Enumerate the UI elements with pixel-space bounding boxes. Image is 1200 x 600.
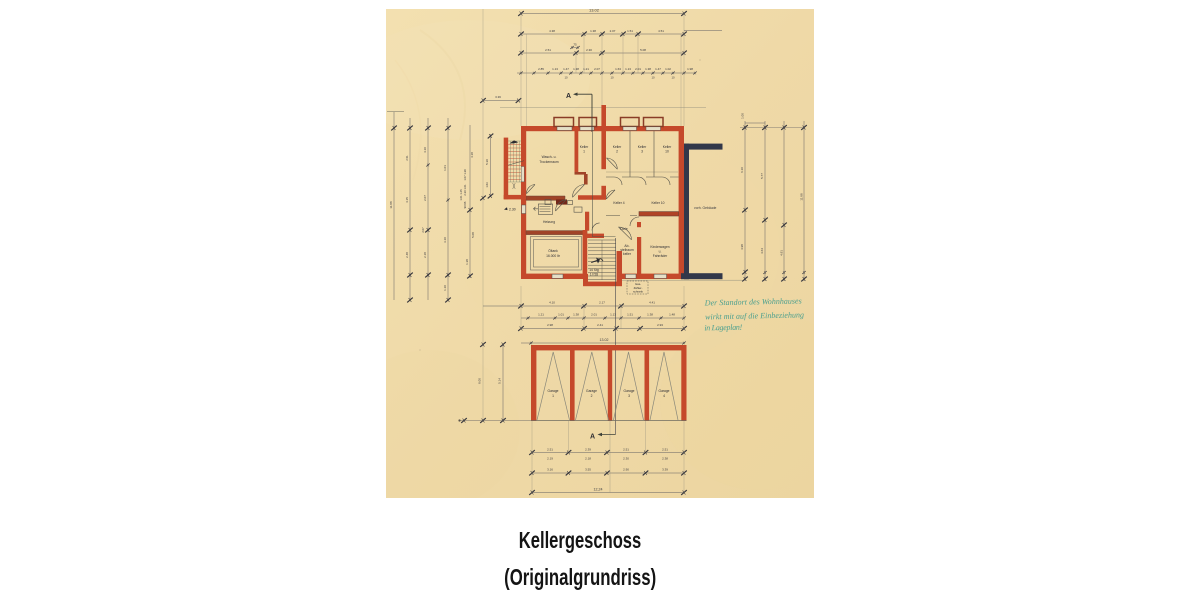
svg-text:2.51: 2.51 xyxy=(662,448,668,452)
svg-text:1.01: 1.01 xyxy=(443,165,447,171)
svg-text:1.00: 1.00 xyxy=(741,113,745,119)
svg-text:5.08: 5.08 xyxy=(471,232,475,238)
svg-text:10: 10 xyxy=(651,76,655,80)
svg-text:3.55: 3.55 xyxy=(585,468,591,472)
svg-text:Garage: Garage xyxy=(586,389,597,393)
svg-text:1.38: 1.38 xyxy=(465,259,469,265)
svg-text:5.14: 5.14 xyxy=(498,378,502,384)
svg-text:2.41: 2.41 xyxy=(597,323,603,327)
svg-text:6.10: 6.10 xyxy=(740,167,744,173)
svg-text:3.16: 3.16 xyxy=(547,468,553,472)
svg-text:4.41: 4.41 xyxy=(649,301,655,305)
svg-text:Keller: Keller xyxy=(638,145,647,149)
svg-text:2.01: 2.01 xyxy=(635,67,641,71)
svg-text:keller: keller xyxy=(623,252,632,256)
svg-text:Garage: Garage xyxy=(659,389,670,393)
svg-text:2.07: 2.07 xyxy=(610,29,616,33)
svg-text:4.10: 4.10 xyxy=(549,301,555,305)
svg-text:2.07: 2.07 xyxy=(594,67,600,71)
svg-text:4.91: 4.91 xyxy=(780,250,784,256)
svg-text:A: A xyxy=(590,434,595,441)
svg-text:4.15: 4.15 xyxy=(405,197,409,203)
svg-text:Keller: Keller xyxy=(580,145,589,149)
svg-text:Garage: Garage xyxy=(624,389,635,393)
svg-text:4.98: 4.98 xyxy=(740,244,744,250)
svg-text:1.63: 1.63 xyxy=(485,182,489,188)
svg-text:1.48: 1.48 xyxy=(669,313,675,317)
svg-text:90 65: 90 65 xyxy=(463,201,467,208)
svg-text:5.30: 5.30 xyxy=(485,159,489,165)
svg-text:2.93: 2.93 xyxy=(657,323,663,327)
svg-text:12,24: 12,24 xyxy=(594,488,603,492)
svg-text:14 Stg: 14 Stg xyxy=(589,268,599,272)
svg-text:2.01: 2.01 xyxy=(591,313,597,317)
svg-text:1.98: 1.98 xyxy=(687,67,693,71)
svg-text:1.10: 1.10 xyxy=(443,285,447,291)
svg-text:2.48: 2.48 xyxy=(405,252,409,258)
svg-text:11.88: 11.88 xyxy=(800,193,804,201)
svg-text:13.02: 13.02 xyxy=(600,338,609,342)
svg-text:1.01 1.25: 1.01 1.25 xyxy=(459,189,463,201)
svg-text:2: 2 xyxy=(616,150,618,154)
svg-text:Öltank: Öltank xyxy=(548,249,558,253)
svg-text:2.30: 2.30 xyxy=(623,457,629,461)
svg-text:2.17: 2.17 xyxy=(599,301,605,305)
svg-text:5.77: 5.77 xyxy=(760,173,764,179)
svg-text:A: A xyxy=(566,93,571,100)
svg-text:2.90: 2.90 xyxy=(623,468,629,472)
svg-text:2.85: 2.85 xyxy=(538,67,544,71)
svg-text:2.07: 2.07 xyxy=(423,195,427,201)
svg-text:10: 10 xyxy=(665,150,669,154)
svg-text:10: 10 xyxy=(610,76,614,80)
svg-text:Kinderwagen: Kinderwagen xyxy=(650,245,669,249)
svg-text:Wasch- u.: Wasch- u. xyxy=(542,155,557,159)
svg-text:Keller 10: Keller 10 xyxy=(651,201,664,205)
svg-text:3.39: 3.39 xyxy=(662,468,668,472)
svg-text:2.51: 2.51 xyxy=(545,48,551,52)
svg-text:2.19: 2.19 xyxy=(547,457,553,461)
svg-text:2.39: 2.39 xyxy=(585,448,591,452)
svg-text:1.51: 1.51 xyxy=(627,29,633,33)
svg-text:8.00: 8.00 xyxy=(478,378,482,384)
svg-text:3.36: 3.36 xyxy=(495,95,501,99)
svg-text:3: 3 xyxy=(641,150,643,154)
svg-text:10: 10 xyxy=(671,76,675,80)
svg-text:1.38: 1.38 xyxy=(645,67,651,71)
svg-text:1: 1 xyxy=(552,394,554,398)
svg-text:1.21: 1.21 xyxy=(538,313,544,317)
svg-text:2.07: 2.07 xyxy=(421,227,425,233)
svg-text:3.10: 3.10 xyxy=(443,237,447,243)
svg-text:4.18: 4.18 xyxy=(470,152,474,158)
svg-text:2.51: 2.51 xyxy=(405,155,409,161)
svg-text:Keller 4: Keller 4 xyxy=(613,201,624,205)
svg-text:1.38: 1.38 xyxy=(647,313,653,317)
svg-text:2.51: 2.51 xyxy=(547,448,553,452)
svg-text:1.01: 1.01 xyxy=(558,313,564,317)
svg-text:4: 4 xyxy=(663,394,665,398)
svg-text:1.47: 1.47 xyxy=(563,67,569,71)
svg-text:1.07 1.38: 1.07 1.38 xyxy=(463,169,467,181)
svg-text:4.64: 4.64 xyxy=(760,248,764,254)
svg-text:1.13: 1.13 xyxy=(552,67,558,71)
svg-text:1.38: 1.38 xyxy=(573,67,579,71)
svg-text:16.000 ltr: 16.000 ltr xyxy=(546,254,561,258)
svg-text:Keller: Keller xyxy=(613,145,622,149)
svg-text:Garage: Garage xyxy=(548,389,559,393)
svg-text:4.10: 4.10 xyxy=(423,147,427,153)
svg-text:2.51: 2.51 xyxy=(623,448,629,452)
svg-text:3: 3 xyxy=(628,394,630,398)
svg-text:1.38: 1.38 xyxy=(590,29,596,33)
svg-text:5.08: 5.08 xyxy=(640,48,646,52)
svg-text:1: 1 xyxy=(583,150,585,154)
svg-text:2.30: 2.30 xyxy=(586,48,592,52)
svg-text:2.18: 2.18 xyxy=(585,457,591,461)
svg-text:17/28: 17/28 xyxy=(590,273,598,277)
svg-text:u.: u. xyxy=(659,250,662,254)
svg-text:4.51: 4.51 xyxy=(658,29,664,33)
svg-text:1.02: 1.02 xyxy=(665,67,671,71)
svg-text:Trockenraum: Trockenraum xyxy=(539,160,559,164)
svg-text:2.38: 2.38 xyxy=(662,457,668,461)
svg-text:in Lageplan!: in Lageplan! xyxy=(704,323,743,333)
svg-text:2: 2 xyxy=(591,394,593,398)
svg-text:75: 75 xyxy=(573,43,577,47)
svg-text:vorh. Gebäude: vorh. Gebäude xyxy=(694,206,717,210)
svg-text:Keller: Keller xyxy=(663,145,672,149)
svg-text:Diele: Diele xyxy=(620,227,628,231)
svg-text:Fahrräder: Fahrräder xyxy=(653,254,668,258)
svg-text:1.51: 1.51 xyxy=(627,313,633,317)
svg-text:1.21: 1.21 xyxy=(583,67,589,71)
svg-text:2.18: 2.18 xyxy=(423,252,427,258)
svg-text:1.13: 1.13 xyxy=(625,67,631,71)
svg-text:schrank: schrank xyxy=(633,290,643,294)
svg-text:1.63: 1.63 xyxy=(615,67,621,71)
svg-text:13.02: 13.02 xyxy=(589,8,600,13)
svg-text:2.98: 2.98 xyxy=(547,323,553,327)
svg-text:4.38: 4.38 xyxy=(549,29,555,33)
svg-text:1.47: 1.47 xyxy=(655,67,661,71)
svg-text:10: 10 xyxy=(564,76,568,80)
svg-text:1.38: 1.38 xyxy=(573,313,579,317)
svg-text:11.88: 11.88 xyxy=(389,201,393,209)
svg-text:2.30 1.01: 2.30 1.01 xyxy=(463,184,467,196)
svg-text:Heizung: Heizung xyxy=(543,220,555,224)
svg-text:2.30: 2.30 xyxy=(509,208,516,212)
